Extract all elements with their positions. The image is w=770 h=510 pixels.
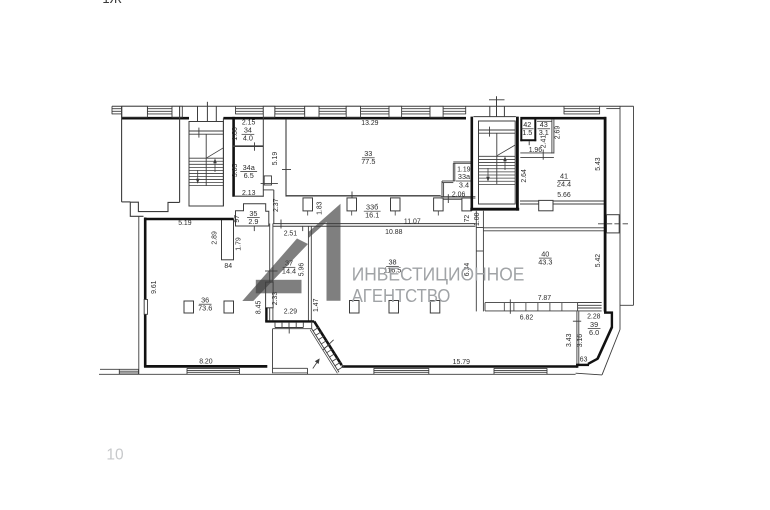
svg-text:6.82: 6.82 [520,314,534,321]
svg-text:84: 84 [224,263,232,270]
svg-text:2.15: 2.15 [242,119,256,126]
svg-text:5.42: 5.42 [595,254,602,268]
svg-text:1Ж: 1Ж [102,0,121,6]
svg-text:63: 63 [580,356,588,363]
svg-text:77.5: 77.5 [361,157,375,166]
svg-text:2.28: 2.28 [587,314,601,321]
svg-text:АГЕНТСТВО: АГЕНТСТВО [352,285,451,306]
svg-text:2.9: 2.9 [248,217,258,226]
svg-text:6.5: 6.5 [244,171,254,180]
svg-text:2.06: 2.06 [452,191,466,198]
svg-text:1.83: 1.83 [316,201,323,215]
svg-text:2.51: 2.51 [284,231,298,238]
svg-text:2.89: 2.89 [211,231,218,245]
svg-text:2.69: 2.69 [554,126,561,140]
svg-text:1.86: 1.86 [232,127,239,141]
svg-text:9.61: 9.61 [151,280,158,294]
svg-text:2.37: 2.37 [273,198,280,212]
svg-text:43.3: 43.3 [538,257,552,266]
svg-text:2.29: 2.29 [284,308,298,315]
svg-text:73.6: 73.6 [198,304,212,313]
svg-text:ИНВЕСТИЦИОННОЕ: ИНВЕСТИЦИОННОЕ [352,264,525,285]
svg-text:97: 97 [234,215,241,223]
svg-text:2.41: 2.41 [540,135,547,149]
svg-text:3.05: 3.05 [232,164,239,178]
svg-text:5.66: 5.66 [557,192,571,199]
svg-text:2.13: 2.13 [242,190,256,197]
svg-text:4.0: 4.0 [243,134,253,143]
svg-text:5.43: 5.43 [595,157,602,171]
svg-text:3.16: 3.16 [577,334,584,348]
svg-text:13.29: 13.29 [361,120,378,127]
svg-text:11.07: 11.07 [404,218,421,225]
svg-text:7.87: 7.87 [538,295,552,302]
svg-text:1.79: 1.79 [236,237,243,251]
svg-text:1.00: 1.00 [474,212,481,226]
svg-text:72: 72 [464,215,471,223]
svg-text:2.64: 2.64 [521,169,528,183]
svg-text:10: 10 [106,447,124,464]
svg-text:1.47: 1.47 [313,298,320,312]
svg-text:15.79: 15.79 [453,359,470,366]
svg-text:1.5: 1.5 [522,128,532,137]
svg-text:6.0: 6.0 [589,328,599,337]
svg-text:5.19: 5.19 [272,152,279,166]
svg-text:16.1: 16.1 [365,211,379,220]
svg-text:24.4: 24.4 [557,180,571,189]
svg-text:8.20: 8.20 [199,358,213,365]
svg-text:3.4: 3.4 [459,180,469,189]
svg-text:8.45: 8.45 [256,301,263,315]
svg-text:3.43: 3.43 [566,333,573,347]
svg-text:5.19: 5.19 [178,220,192,227]
svg-text:2.33: 2.33 [272,292,279,306]
svg-text:5.96: 5.96 [299,263,306,277]
svg-text:10.88: 10.88 [385,229,402,236]
